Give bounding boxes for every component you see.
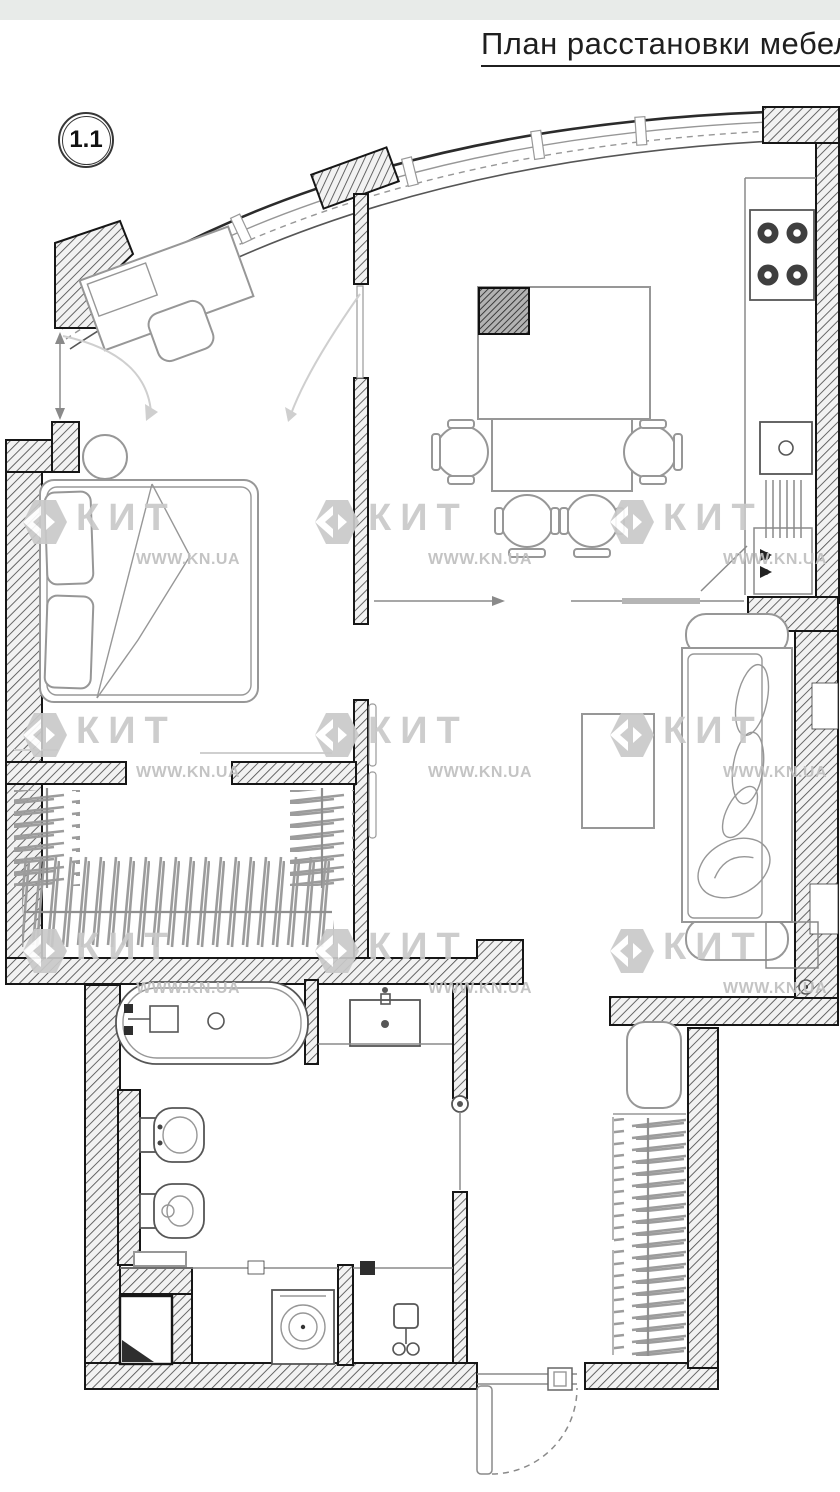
interior-wall xyxy=(354,700,368,962)
bathtub xyxy=(116,982,308,1064)
wall-notch xyxy=(810,884,838,934)
bedroom xyxy=(40,227,363,702)
washing-machine xyxy=(272,1290,334,1364)
living-room xyxy=(582,614,818,994)
dining-chair xyxy=(560,495,624,557)
door-panel xyxy=(357,286,363,378)
living-bottom-wall xyxy=(610,997,838,1025)
entrance xyxy=(477,1368,577,1474)
left-wall-stub xyxy=(6,440,54,472)
dining-chair xyxy=(432,420,488,484)
bathroom-right-wall xyxy=(453,984,467,1098)
left-wall xyxy=(6,472,42,764)
stove xyxy=(750,210,814,300)
kitchen-island xyxy=(478,287,650,419)
niche-wall xyxy=(120,1268,192,1294)
clothes-rack xyxy=(22,855,334,950)
laundry-wall xyxy=(338,1265,353,1365)
base-cabinet xyxy=(754,528,812,594)
sliding-door-panels xyxy=(369,704,376,838)
entry-door-leaf xyxy=(477,1386,492,1474)
pillow xyxy=(44,491,93,585)
junction-box xyxy=(360,1261,375,1275)
kitchen-living-opening xyxy=(374,596,744,606)
door-swing-arc xyxy=(492,1388,577,1474)
dining-table xyxy=(492,419,632,491)
bathroom-right-wall xyxy=(453,1192,467,1367)
toilet xyxy=(140,1184,204,1238)
hallway xyxy=(120,1022,686,1356)
sofa xyxy=(682,614,792,960)
laundry-door xyxy=(248,1261,264,1274)
left-pier xyxy=(52,422,79,472)
pouf xyxy=(627,1022,681,1108)
interior-wall xyxy=(354,378,368,624)
bottom-wall xyxy=(85,1363,477,1389)
window-mullion xyxy=(635,117,647,146)
dining-chair xyxy=(495,495,559,557)
pier-top-right xyxy=(763,107,839,143)
window-mullion xyxy=(402,157,418,187)
door-lock xyxy=(548,1368,572,1390)
left-lower-wall xyxy=(85,985,120,1365)
bedroom-closet-divider xyxy=(232,762,356,784)
bedroom-door-swing xyxy=(285,286,363,422)
bedside-table xyxy=(83,435,127,479)
kitchen-door xyxy=(701,546,772,591)
interior-wall xyxy=(354,194,368,284)
floor-plan-page: План расстановки мебели 1.1 xyxy=(0,0,840,1492)
coffee-table xyxy=(582,714,654,828)
kitchen-right-wall xyxy=(816,143,839,603)
floor-plan-drawing xyxy=(0,0,840,1492)
vent-shaft xyxy=(479,288,529,334)
bathroom-pocket-door xyxy=(452,1096,468,1190)
hall-closet-rack xyxy=(614,1118,686,1356)
bathroom-fixture-wall xyxy=(118,1090,140,1265)
bedroom-closet-divider xyxy=(6,762,126,784)
bidet xyxy=(140,1108,204,1162)
wall-notch xyxy=(812,683,838,729)
floor-stand xyxy=(393,1304,419,1355)
niche-wall xyxy=(172,1294,192,1366)
kitchen-sink xyxy=(760,422,812,538)
niche-shelf xyxy=(134,1252,186,1266)
pillow xyxy=(44,595,93,689)
washbasin xyxy=(318,987,452,1046)
bed xyxy=(40,480,258,702)
hallway-right-wall xyxy=(688,1028,718,1368)
